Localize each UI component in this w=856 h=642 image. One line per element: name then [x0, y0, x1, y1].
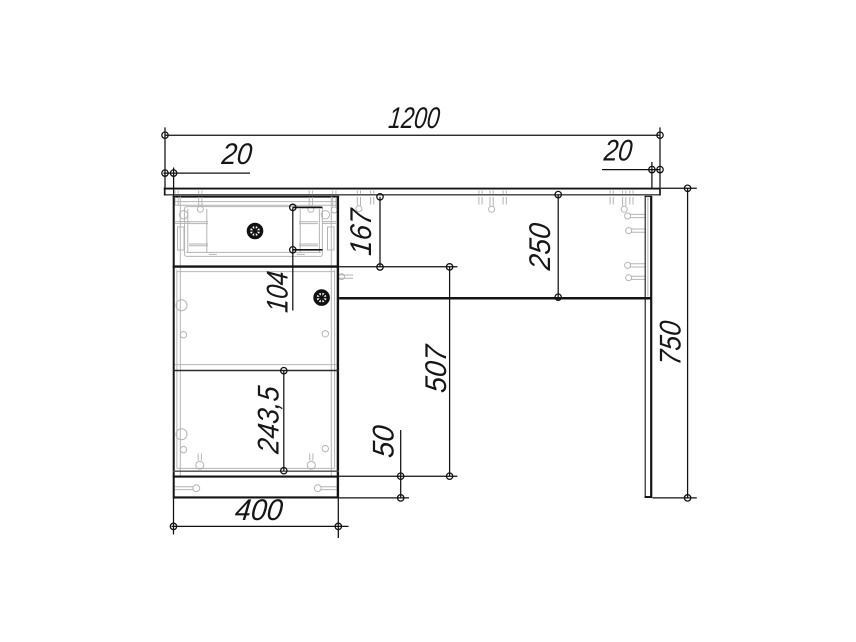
svg-text:20: 20: [219, 138, 254, 171]
svg-text:167: 167: [345, 206, 378, 257]
svg-text:104: 104: [262, 270, 295, 314]
svg-text:1200: 1200: [387, 102, 442, 135]
svg-text:750: 750: [655, 319, 688, 367]
svg-text:400: 400: [234, 494, 285, 527]
svg-text:250: 250: [524, 221, 557, 272]
svg-text:507: 507: [420, 343, 453, 395]
svg-text:20: 20: [602, 134, 635, 167]
svg-text:243,5: 243,5: [253, 384, 286, 456]
svg-text:50: 50: [368, 424, 401, 460]
